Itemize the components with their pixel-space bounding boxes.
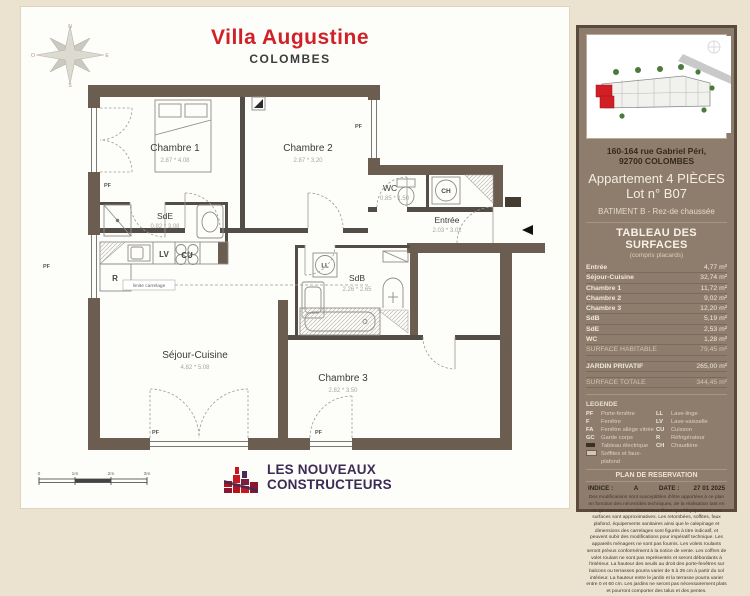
building-floor: BATIMENT B - Rez-de chaussée <box>586 207 727 216</box>
date-value: 27 01 2025 <box>679 485 725 492</box>
svg-text:PF: PF <box>104 183 112 189</box>
apartment-block: Appartement 4 PIÈCES Lot n° B07 <box>586 171 727 201</box>
svg-text:Chambre 3: Chambre 3 <box>318 373 368 384</box>
surface-totale-row: SURFACE TOTALE344,45 m² <box>586 377 727 388</box>
svg-text:SdE: SdE <box>157 211 173 221</box>
info-panel: 160-164 rue Gabriel Péri, 92700 COLOMBES… <box>576 25 737 512</box>
entrance-arrow-icon <box>522 225 533 235</box>
title-block: Villa Augustine COLOMBES <box>90 26 490 66</box>
logo-line1: LES NOUVEAUX <box>267 462 392 477</box>
washing-machine: LL <box>313 253 337 277</box>
svg-text:LV: LV <box>159 250 169 259</box>
sdb-shelf <box>383 251 408 262</box>
corner-vent-symbol <box>252 97 265 110</box>
svg-text:PF: PF <box>43 264 51 270</box>
svg-text:4.82 * 5.08: 4.82 * 5.08 <box>180 365 210 371</box>
svg-text:Chambre 1: Chambre 1 <box>150 143 200 154</box>
svg-text:N: N <box>68 24 72 30</box>
project-title: Villa Augustine <box>90 26 490 50</box>
project-city: COLOMBES <box>90 52 490 66</box>
kitchen-counter: LV CU <box>100 242 228 265</box>
svg-text:Entrée: Entrée <box>434 215 459 225</box>
svg-text:Chambre 2: Chambre 2 <box>283 143 333 154</box>
legend-title: LEGENDE <box>586 401 727 408</box>
divider <box>586 222 727 223</box>
svg-text:CU: CU <box>181 251 193 260</box>
surfaces-subtitle: (compris placards) <box>586 252 727 259</box>
lot-number: Lot n° B07 <box>586 186 727 201</box>
divider <box>586 394 727 395</box>
address-line1: 160-164 rue Gabriel Péri, <box>586 146 727 156</box>
svg-text:O: O <box>31 53 35 59</box>
svg-text:limite carrelage: limite carrelage <box>133 283 166 289</box>
jardin-privatif-row: JARDIN PRIVATIF265,00 m² <box>586 361 727 372</box>
svg-text:PF: PF <box>152 430 160 436</box>
svg-text:0.82 * 3.08: 0.82 * 3.08 <box>150 224 180 230</box>
limite-carrelage: limite carrelage <box>123 280 370 290</box>
exterior-walls <box>88 85 545 450</box>
svg-text:2.03 * 3.02: 2.03 * 3.02 <box>432 228 462 234</box>
indice-label: INDICE : <box>588 485 613 492</box>
builder-logo-icon <box>222 459 260 495</box>
svg-text:E: E <box>105 53 109 59</box>
soffites-swatch <box>586 450 599 466</box>
builder-logo: LES NOUVEAUX CONSTRUCTEURS <box>222 459 422 495</box>
site-plan-thumbnail <box>586 34 727 139</box>
address-block: 160-164 rue Gabriel Péri, 92700 COLOMBES <box>586 146 727 166</box>
boiler: CH <box>432 177 460 204</box>
scale-bar: 0 1m 2m 3m <box>35 468 165 494</box>
svg-text:R: R <box>112 274 118 283</box>
tableau-electrique-symbol <box>505 197 521 207</box>
svg-text:2.87 * 4.08: 2.87 * 4.08 <box>160 158 190 164</box>
site-plan-drawing <box>588 36 731 133</box>
date-label: DATE : <box>659 485 680 492</box>
table-row: SdB5,19 m² <box>586 314 727 324</box>
disclaimer-text: Des modifications sont susceptibles d'êt… <box>586 495 727 596</box>
table-row: Séjour-Cuisine32,74 m² <box>586 273 727 283</box>
svg-text:1m: 1m <box>72 471 79 477</box>
surfaces-title: TABLEAU DES SURFACES <box>586 227 727 251</box>
svg-text:SdB: SdB <box>349 273 365 283</box>
svg-text:PF: PF <box>355 124 363 130</box>
logo-line2: CONSTRUCTEURS <box>267 477 392 492</box>
svg-text:0.85 * 1.50: 0.85 * 1.50 <box>380 196 410 202</box>
table-row: WC1,28 m² <box>586 335 727 345</box>
svg-text:WC: WC <box>383 183 397 193</box>
floor-plan: CH LV CU R limite carrelage LL <box>25 75 555 467</box>
bathtub <box>300 308 380 335</box>
table-row: Chambre 111,72 m² <box>586 284 727 294</box>
svg-text:CH: CH <box>441 188 451 195</box>
svg-text:2.82 * 3.50: 2.82 * 3.50 <box>328 388 358 394</box>
svg-text:3m: 3m <box>144 471 151 477</box>
table-row: Chambre 312,20 m² <box>586 304 727 314</box>
svg-text:2m: 2m <box>108 471 115 477</box>
surface-habitable-row: SURFACE HABITABLE79,45 m² <box>586 345 727 355</box>
svg-text:Séjour-Cuisine: Séjour-Cuisine <box>162 350 228 361</box>
svg-text:0: 0 <box>38 471 41 477</box>
svg-text:2.26 * 2.65: 2.26 * 2.65 <box>342 287 372 293</box>
svg-text:PF: PF <box>315 430 323 436</box>
windows <box>88 100 380 450</box>
indice-value: A <box>613 485 659 492</box>
reservation-title: PLAN DE RESERVATION <box>586 469 727 482</box>
address-line2: 92700 COLOMBES <box>586 156 727 166</box>
tableau-electrique-swatch <box>586 442 599 450</box>
sde-basin <box>197 205 223 238</box>
table-row: SdE2,53 m² <box>586 325 727 335</box>
table-row: Entrée4,77 m² <box>586 263 727 273</box>
page: { "title": {"main": "Villa Augustine", "… <box>0 0 750 530</box>
surfaces-table: Entrée4,77 m² Séjour-Cuisine32,74 m² Cha… <box>586 263 727 388</box>
table-row: Chambre 29,02 m² <box>586 294 727 304</box>
svg-text:2.87 * 3.20: 2.87 * 3.20 <box>293 158 323 164</box>
legend-grid: PFPorte-fenêtreLLLave-linge FFenêtreLVLa… <box>586 410 727 466</box>
apartment-type: Appartement 4 PIÈCES <box>586 171 727 186</box>
pedestal-sink <box>383 278 403 308</box>
svg-text:LL: LL <box>321 264 329 270</box>
indice-date-row: INDICE : A DATE : 27 01 2025 <box>586 482 727 494</box>
